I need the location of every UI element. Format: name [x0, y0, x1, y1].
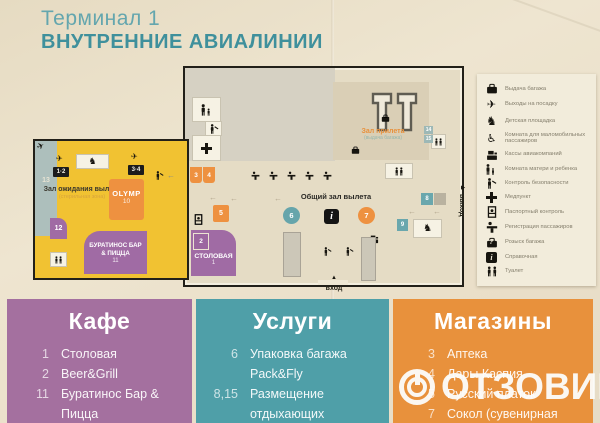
- check-in-icon: [251, 171, 260, 180]
- info-desk: i: [324, 209, 339, 224]
- baggage-claim-icon: [381, 114, 390, 123]
- info-icon: i: [330, 211, 333, 222]
- stolovaya-label: СТОЛОВАЯ: [191, 253, 236, 260]
- otzovik-logo-icon: [399, 369, 435, 405]
- baggage-belt-icon: [371, 92, 393, 132]
- entrance-arrow-icon: ▲: [331, 275, 337, 281]
- check-in-icon: [305, 171, 314, 180]
- legend-item: ♞ Детская площадка: [485, 114, 591, 128]
- security-room: [205, 121, 222, 136]
- map-marker-5: 5: [213, 205, 229, 222]
- map-pillar: [283, 232, 301, 277]
- map-marker-15: 15: [424, 135, 433, 143]
- wheelchair-icon: ♿: [485, 132, 498, 145]
- security-icon: [155, 171, 164, 180]
- legend-item: Кассы авиакомпаний: [485, 149, 591, 161]
- panel-row: 11Буратинос Бар & Пицца: [7, 384, 192, 423]
- entrance-label: вход: [320, 285, 348, 292]
- toilet-icon: [54, 256, 63, 264]
- panel-row: 1Столовая: [7, 344, 192, 364]
- map-laveranda-cafe: 12: [50, 218, 67, 239]
- security-icon: [345, 247, 354, 256]
- map-marker-4: 4: [203, 167, 215, 183]
- security-icon: [209, 124, 219, 134]
- baggage-search-icon: [351, 146, 360, 155]
- security-icon: [485, 178, 498, 189]
- passport-control-icon: [194, 214, 203, 225]
- map-marker-7: 7: [358, 207, 375, 224]
- medical-icon: [485, 192, 498, 203]
- passport-control-icon: [485, 206, 498, 218]
- panel-row: 6Упаковка багажа Pack&Fly: [196, 344, 389, 384]
- mother-child-icon: [485, 164, 498, 175]
- toilet-icon: [434, 138, 443, 146]
- info-icon: i: [485, 252, 498, 263]
- map-legend: Выдача багажа ✈ Выходы на посадку ♞ Детс…: [477, 74, 596, 286]
- map-marker-12: 12: [55, 225, 63, 232]
- plane-icon: ✈: [131, 153, 138, 161]
- map-marker-13: 13: [35, 177, 57, 184]
- legend-item: ✈ Выходы на посадку: [485, 98, 591, 111]
- toilet-room: [385, 163, 413, 179]
- check-in-icon: [485, 221, 498, 233]
- page-title-domestic: ВНУТРЕННИЕ АВИАЛИНИИ: [41, 31, 323, 54]
- panel-services: Услуги 6Упаковка багажа Pack&Fly 8,15Раз…: [196, 299, 389, 423]
- arrival-hall-label: Зал прилета (выдача багажа): [341, 128, 425, 141]
- plane-icon: ✈: [56, 155, 63, 163]
- legend-item: Туалет: [485, 266, 591, 277]
- toilet-icon: [485, 266, 498, 277]
- map-olymp-store: OLYMP 10: [109, 179, 144, 220]
- panel-cafe-title: Кафе: [7, 308, 192, 335]
- flow-arrow-icon: ←: [167, 172, 175, 180]
- map-sterile-zone: 13 ✈ ✈ ✈ ♞ 1·2 3·4 Зал ожидания вылета (…: [33, 139, 189, 280]
- map-pillar: [361, 237, 376, 281]
- gate-badge-1-2: 1·2: [53, 167, 69, 177]
- security-icon: [323, 247, 332, 256]
- ticket-office-icon: [485, 149, 498, 161]
- exit-label: выход: [458, 194, 465, 217]
- stolovaya-number: 1: [191, 260, 236, 266]
- map-stolovaya: 2 СТОЛОВАЯ 1: [191, 230, 236, 276]
- flow-arrow-icon: ←: [408, 208, 416, 216]
- medical-room: [192, 135, 221, 161]
- map-marker-9: 9: [397, 219, 408, 231]
- toilet-room: [431, 134, 446, 149]
- toilet-room: [50, 252, 67, 267]
- panel-row: 3Аптека: [393, 344, 593, 364]
- legend-item: Паспортный контроль: [485, 206, 591, 218]
- playground-icon: ♞: [88, 157, 96, 166]
- legend-item: ? Розыск багажа: [485, 237, 591, 249]
- baggage-search-icon: ?: [485, 237, 498, 249]
- map-main-hall: Зал прилета (выдача багажа) 14 15 3 4 5 …: [183, 66, 464, 287]
- page-title-terminal: Терминал 1: [41, 7, 160, 31]
- exit-arrow-icon: ▶: [461, 186, 465, 192]
- flow-arrow-icon: ←: [230, 195, 238, 203]
- legend-item: i Справочная: [485, 252, 591, 263]
- flow-arrow-icon: ←: [433, 208, 441, 216]
- check-in-icon: [269, 171, 278, 180]
- panel-cafe: Кафе 1Столовая 2Beer&Grill 11Буратинос Б…: [7, 299, 192, 423]
- legend-item: Медпункт: [485, 192, 591, 203]
- olymp-number: 10: [109, 198, 144, 205]
- baggage-belt-icon: [396, 92, 418, 132]
- paper-crease: [436, 0, 600, 48]
- map-buratinos-bar: БУРАТИНОС БАР & ПИЦЦА 11: [84, 231, 147, 274]
- check-in-icon: [323, 171, 332, 180]
- legend-item: Контроль безопасности: [485, 178, 591, 189]
- mother-child-icon: [200, 104, 214, 116]
- playground-icon: ♞: [485, 114, 498, 128]
- mother-child-room: [192, 97, 221, 122]
- map-marker-3: 3: [190, 167, 202, 183]
- baggage-claim-icon: [485, 83, 498, 95]
- flow-arrow-icon: ←: [209, 194, 217, 202]
- map-marker-8: 8: [421, 193, 433, 205]
- gate-badge-3-4: 3·4: [128, 165, 144, 175]
- medical-icon: [201, 143, 212, 154]
- map-marker-14: 14: [424, 126, 433, 134]
- playground-area: ♞: [76, 154, 109, 169]
- map-room-gray: [434, 193, 446, 205]
- check-in-icon: [287, 171, 296, 180]
- panel-row: 8,15Размещение отдыхающих: [196, 384, 389, 423]
- playground-area: ♞: [413, 219, 442, 238]
- buratinos-number: 11: [84, 258, 147, 264]
- panel-row: 2Beer&Grill: [7, 364, 192, 384]
- map-marker-6: 6: [283, 207, 300, 224]
- panel-shops-title: Магазины: [393, 308, 593, 335]
- map-marker-2: 2: [193, 233, 209, 250]
- legend-item: Комната матери и ребенка: [485, 164, 591, 175]
- otzovik-watermark: ОТЗОВИК: [399, 366, 600, 408]
- scanned-terminal-map-page: Терминал 1 ВНУТРЕННИЕ АВИАЛИНИИ Зал прил…: [0, 0, 600, 423]
- common-hall-label: Общий зал вылета: [281, 192, 391, 201]
- legend-item: Выдача багажа: [485, 83, 591, 95]
- otzovik-watermark-text: ОТЗОВИК: [441, 366, 600, 408]
- legend-item: Регистрация пассажиров: [485, 221, 591, 233]
- legend-item: ♿ Комната для маломобильных пассажиров: [485, 132, 591, 146]
- panel-services-title: Услуги: [196, 308, 389, 335]
- playground-icon: ♞: [423, 224, 432, 234]
- boarding-gates-icon: ✈: [485, 98, 498, 111]
- toilet-icon: [394, 167, 404, 176]
